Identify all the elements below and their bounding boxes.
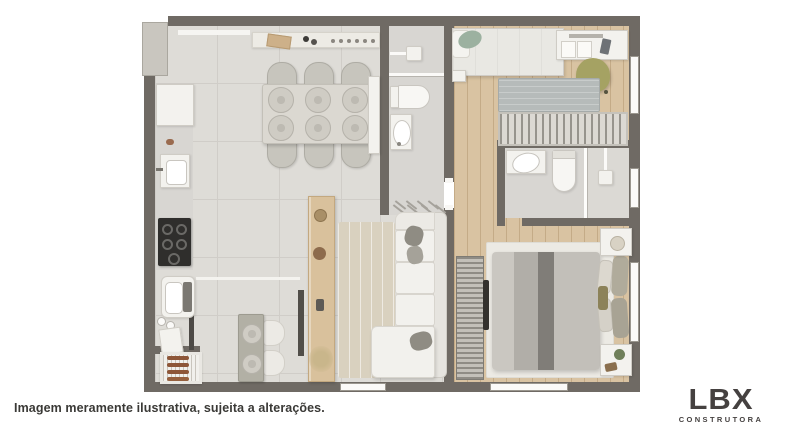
wall-top [168, 16, 640, 26]
dining-chair [267, 140, 297, 168]
shower-glass-1 [389, 73, 444, 77]
place-setting [342, 115, 368, 141]
place-setting [305, 115, 331, 141]
dining-chair [341, 140, 371, 168]
window-bathroom-2 [630, 168, 639, 208]
nightstand [600, 228, 632, 256]
sofa-backrest [433, 212, 447, 378]
tap-knob [157, 317, 166, 326]
dining-chair [304, 140, 334, 168]
bed-pillow [611, 297, 630, 338]
decor-plant [614, 349, 625, 360]
wall-left [144, 74, 155, 392]
shower-arm-2 [604, 148, 607, 172]
toilet-1-bowl [398, 85, 430, 109]
toilet-2 [552, 150, 576, 192]
bistro-chair [263, 320, 285, 346]
washbasin-2 [510, 150, 542, 177]
decor-bowl [314, 209, 327, 222]
shower-arm-1 [390, 52, 406, 55]
kitchen-decor-item [166, 139, 174, 145]
knob-row [331, 39, 335, 43]
desk [556, 30, 628, 60]
window-master-bottom [490, 383, 568, 391]
washbasin-1 [393, 120, 411, 146]
floor-plan-image: Imagem meramente ilustrativa, sujeita a … [0, 0, 785, 442]
burner [162, 239, 173, 250]
nightstand [600, 344, 632, 376]
sofa-cushion [395, 294, 435, 326]
place-setting [342, 87, 368, 113]
tub-basin [165, 282, 183, 314]
decor-candle [316, 299, 324, 311]
toilet-2-tank [553, 151, 575, 159]
shower-head-1 [406, 46, 422, 61]
place-setting [268, 115, 294, 141]
sliding-door-track [196, 277, 300, 280]
window-bedroom-2 [630, 56, 639, 114]
sofa-cushion [395, 262, 435, 294]
tv-slat-panel [456, 256, 484, 380]
monitor [569, 34, 603, 38]
place-setting [242, 354, 262, 374]
place-setting [305, 87, 331, 113]
grill-skewers [167, 356, 189, 360]
sink-faucet [156, 168, 163, 171]
bed-pillow [611, 256, 629, 297]
washbasin-2-counter [506, 150, 546, 174]
service-shaft [142, 22, 168, 76]
double-bed-duvet [492, 252, 600, 370]
kitchen-sink [160, 154, 190, 188]
place-setting [242, 324, 262, 344]
tablet [600, 38, 612, 55]
wood-sideboard [308, 196, 335, 382]
wall-bathroom-2-left [497, 148, 505, 226]
faucet [397, 142, 401, 146]
papers [561, 41, 576, 58]
fridge [156, 84, 194, 126]
bed2-side-shelf [452, 70, 466, 82]
burner [168, 253, 180, 265]
sliding-door-panel [298, 290, 304, 356]
wardrobe [498, 112, 628, 146]
tall-cabinet [368, 76, 380, 154]
lumbar-pillow [598, 286, 608, 310]
cutting-board [266, 33, 292, 49]
bistro-table [238, 314, 264, 382]
burner [162, 224, 173, 235]
papers [577, 41, 592, 58]
door-frame-tab-top [445, 178, 453, 183]
laundry-tub [161, 276, 195, 318]
shower-head-2 [598, 170, 613, 185]
door-frame-tab-bottom [445, 205, 453, 210]
place-setting [268, 87, 294, 113]
wall-bathroom-1 [380, 26, 389, 215]
buffet-counter [252, 32, 380, 48]
burner [176, 239, 187, 250]
tv [483, 280, 489, 330]
window-master-bedroom [630, 262, 639, 342]
sink-basin [166, 160, 187, 185]
lbx-logo: LBX CONSTRUTORA [673, 385, 769, 424]
tub-washboard [183, 282, 192, 312]
decor-tray [610, 236, 625, 251]
washbasin-1-counter [390, 114, 412, 150]
decor-vase [313, 247, 326, 260]
bedroom-2-rug [498, 78, 600, 112]
wall-bathroom-2-bottom [522, 218, 640, 226]
dried-plant [309, 345, 333, 373]
bistro-chair [263, 350, 285, 376]
cooktop [158, 218, 191, 266]
wall-shelf [178, 30, 250, 35]
coffee-set [303, 36, 309, 42]
burner [176, 224, 187, 235]
logo-subtitle: CONSTRUTORA [673, 415, 769, 424]
shower-glass-2 [584, 148, 588, 218]
disclaimer-text: Imagem meramente ilustrativa, sujeita a … [14, 401, 325, 415]
logo-wordmark: LBX [673, 386, 769, 413]
decor-object [604, 362, 617, 372]
window-living-room [340, 383, 386, 391]
